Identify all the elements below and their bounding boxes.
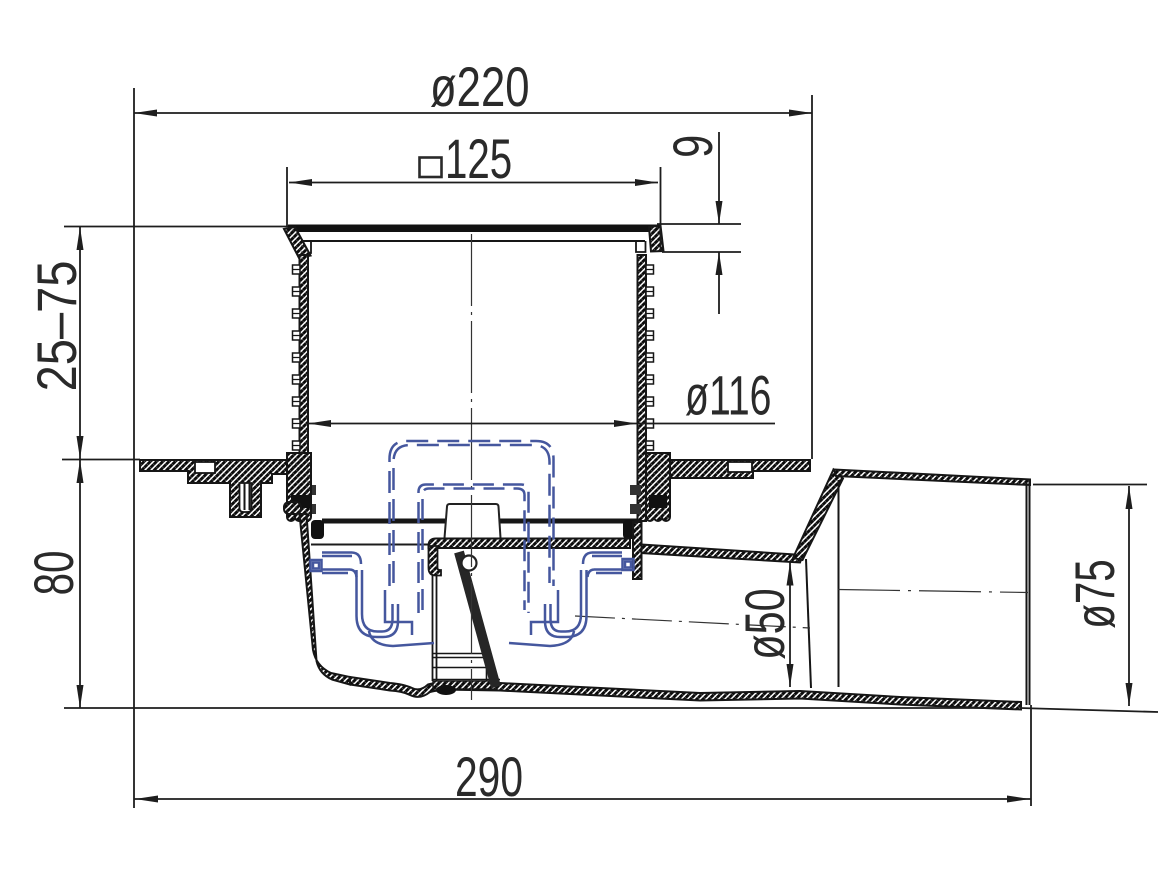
svg-text:ø75: ø75 — [1065, 559, 1127, 628]
svg-text:ø220: ø220 — [430, 56, 530, 118]
svg-text:290: 290 — [455, 747, 523, 809]
svg-text:9: 9 — [662, 135, 725, 158]
svg-text:125: 125 — [445, 129, 512, 191]
svg-text:25–75: 25–75 — [25, 261, 88, 392]
svg-text:ø50: ø50 — [734, 588, 797, 659]
svg-text:ø116: ø116 — [685, 365, 771, 428]
svg-text:80: 80 — [24, 551, 86, 596]
